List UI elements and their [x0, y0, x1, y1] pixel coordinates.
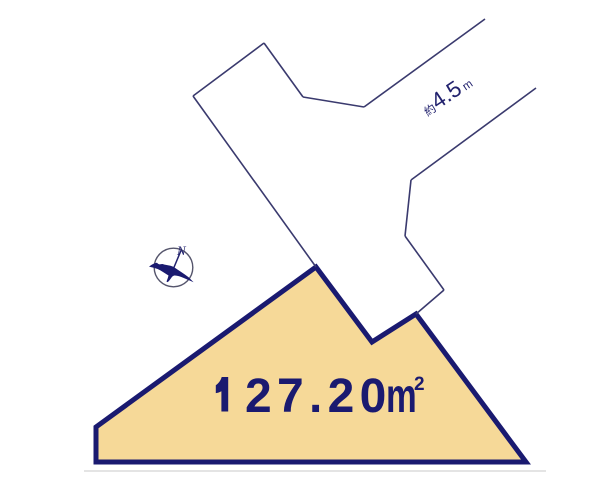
svg-text:2: 2 [414, 374, 425, 395]
svg-text:m: m [386, 368, 417, 422]
svg-text:N: N [176, 243, 187, 258]
svg-text:27.20: 27.20 [245, 370, 392, 423]
